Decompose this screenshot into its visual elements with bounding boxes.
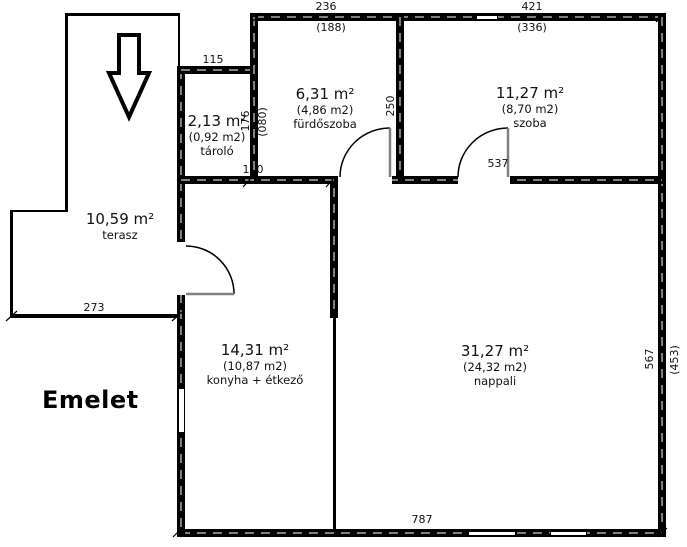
- dimension-ticks: [6, 13, 667, 537]
- dim-furdoszoba-width-net: (188): [306, 22, 356, 34]
- dim-terasz-width: 273: [74, 302, 114, 314]
- dim-building-height: 567: [644, 344, 656, 374]
- floor-plan: 10,59 m² terasz 2,13 m² (0,92 m2) tároló…: [0, 0, 687, 547]
- dim-szoba-bottom: 537: [478, 158, 518, 170]
- dim-szoba-width-net: (336): [510, 22, 554, 34]
- dim-szoba-width: 421: [512, 1, 552, 13]
- dim-furdoszoba-height: 250: [385, 91, 397, 121]
- dim-building-height-net: (453): [669, 343, 681, 377]
- dim-furdoszoba-width: 236: [306, 1, 346, 13]
- dim-tarolo-door: (080): [257, 105, 269, 139]
- door-swing-layer: [0, 0, 687, 547]
- dim-tarolo-width: 115: [193, 54, 233, 66]
- door-arc-furdoszoba: [340, 128, 390, 177]
- dim-building-width: 787: [402, 514, 442, 526]
- dim-tarolo-height: 176: [240, 106, 252, 136]
- down-arrow-icon: [109, 35, 149, 117]
- door-arc-terasz: [186, 246, 234, 294]
